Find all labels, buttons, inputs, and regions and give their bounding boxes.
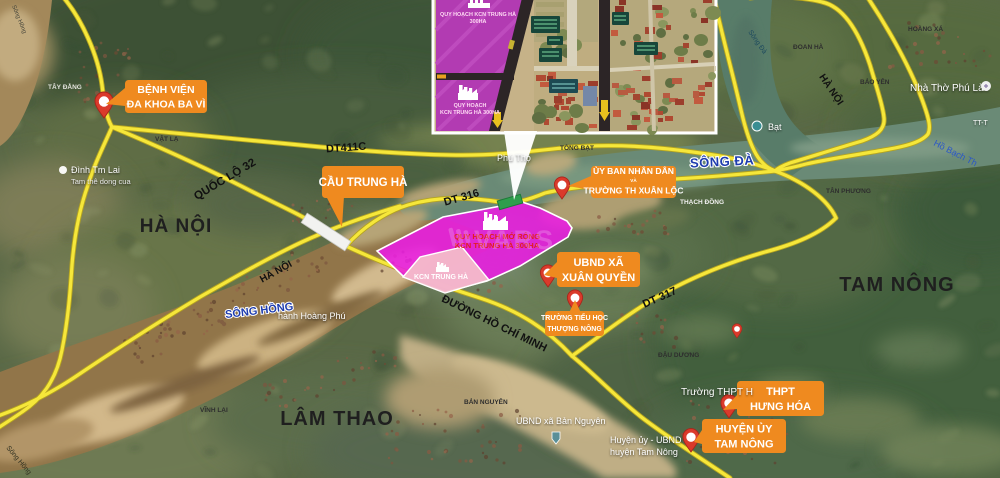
svg-text:ĐOAN HÀ: ĐOAN HÀ (793, 42, 824, 51)
svg-text:TT-T: TT-T (973, 120, 988, 127)
svg-text:BẢN NGUYÊN: BẢN NGUYÊN (464, 397, 508, 406)
svg-text:TRƯỜNG TIỂU HỌC: TRƯỜNG TIỂU HỌC (541, 313, 608, 322)
svg-text:Đình Tm Lai: Đình Tm Lai (71, 165, 120, 175)
svg-text:XUÂN QUYỀN: XUÂN QUYỀN (562, 271, 635, 284)
svg-text:huyện Tam Nông: huyện Tam Nông (610, 447, 678, 457)
svg-text:HUYỆN ỦY: HUYỆN ỦY (716, 423, 774, 436)
svg-text:Trường THPT H: Trường THPT H (681, 387, 753, 398)
svg-text:Nhà Thờ Phú Lào: Nhà Thờ Phú Lào (910, 83, 990, 94)
svg-text:ỦY BAN NHÂN DÂN: ỦY BAN NHÂN DÂN (593, 165, 674, 176)
svg-text:BỆNH VIỆN: BỆNH VIỆN (137, 83, 194, 96)
svg-text:VẬT LẠ: VẬT LẠ (155, 134, 179, 143)
svg-text:TÂY ĐẰNG: TÂY ĐẰNG (48, 82, 82, 91)
svg-text:HÀ NỘI: HÀ NỘI (140, 215, 213, 237)
svg-text:Phú Thọ: Phú Thọ (497, 153, 531, 163)
svg-text:VĨNH LẠI: VĨNH LẠI (200, 405, 228, 414)
svg-text:hành Hoàng Phú: hành Hoàng Phú (278, 311, 346, 321)
svg-text:Bạt: Bạt (768, 122, 782, 132)
svg-text:TAM NÔNG: TAM NÔNG (839, 272, 954, 296)
svg-text:ĐA KHOA BA VÌ: ĐA KHOA BA VÌ (127, 98, 206, 111)
svg-text:300HA: 300HA (470, 19, 487, 25)
svg-text:CẦU TRUNG HÀ: CẦU TRUNG HÀ (319, 176, 408, 189)
svg-text:ĐẬU DƯƠNG: ĐẬU DƯƠNG (658, 350, 699, 359)
svg-text:TRƯỜNG TH XUÂN LỘC: TRƯỜNG TH XUÂN LỘC (584, 185, 684, 196)
svg-text:UBND xã Bản Nguyên: UBND xã Bản Nguyên (516, 416, 606, 426)
svg-text:BẢO YÊN: BẢO YÊN (860, 77, 890, 86)
svg-text:VÀ: VÀ (630, 177, 637, 183)
svg-text:TÒNG BẠT: TÒNG BẠT (560, 143, 594, 152)
svg-text:Tam thê dong cua: Tam thê dong cua (71, 177, 131, 186)
svg-text:KCN TRUNG HÀ: KCN TRUNG HÀ (414, 272, 468, 281)
svg-text:UBND XÃ: UBND XÃ (573, 256, 623, 269)
svg-text:QUY HOẠCH: QUY HOẠCH (454, 103, 487, 109)
svg-text:TAM NÔNG: TAM NÔNG (714, 438, 773, 451)
svg-text:THƯỢNG NÔNG: THƯỢNG NÔNG (547, 324, 602, 333)
svg-text:THPT: THPT (766, 386, 795, 398)
svg-text:TÂN PHƯƠNG: TÂN PHƯƠNG (826, 186, 871, 195)
svg-text:HOÀNG XÁ: HOÀNG XÁ (908, 24, 943, 33)
svg-text:Huyện ủy - UBND: Huyện ủy - UBND (610, 435, 682, 445)
svg-text:QUY HOẠCH KCN TRUNG HÀ: QUY HOẠCH KCN TRUNG HÀ (440, 11, 516, 18)
svg-text:VARS: VARS (474, 225, 555, 255)
svg-text:KCN TRUNG HÀ 300HA: KCN TRUNG HÀ 300HA (440, 109, 500, 116)
svg-text:LÂM THAO: LÂM THAO (280, 406, 394, 430)
svg-text:HƯNG HÓA: HƯNG HÓA (750, 400, 811, 413)
